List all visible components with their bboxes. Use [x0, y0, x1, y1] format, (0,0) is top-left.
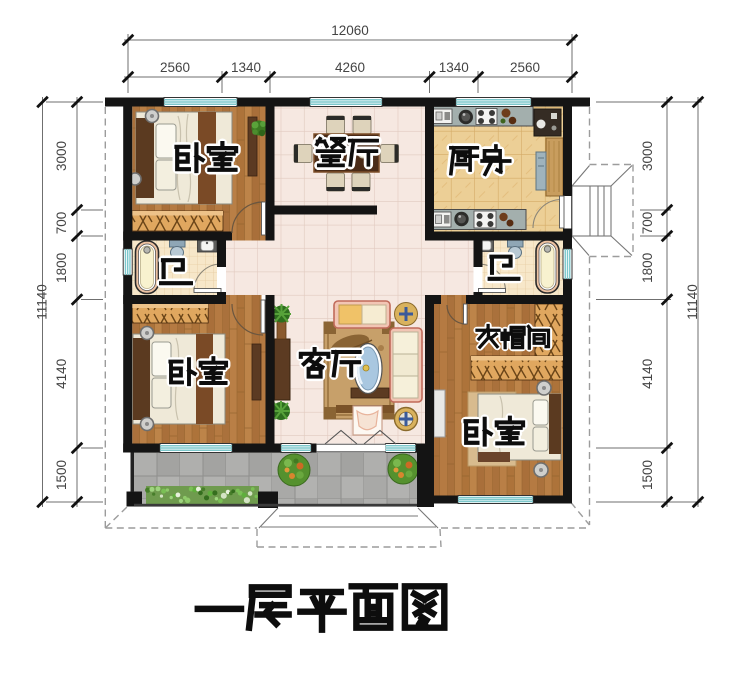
- svg-text:2560: 2560: [160, 60, 190, 75]
- svg-text:11140: 11140: [35, 284, 50, 320]
- svg-text:4260: 4260: [335, 60, 365, 75]
- svg-text:1340: 1340: [231, 60, 261, 75]
- svg-text:1500: 1500: [54, 460, 69, 490]
- svg-text:4140: 4140: [54, 359, 69, 389]
- svg-text:3000: 3000: [640, 141, 655, 171]
- svg-text:700: 700: [640, 212, 655, 235]
- svg-text:700: 700: [54, 212, 69, 235]
- svg-text:4140: 4140: [640, 359, 655, 389]
- svg-text:1340: 1340: [439, 60, 469, 75]
- svg-text:12060: 12060: [331, 23, 369, 38]
- svg-text:11140: 11140: [685, 284, 700, 320]
- svg-text:1800: 1800: [640, 253, 655, 283]
- svg-text:1500: 1500: [640, 460, 655, 490]
- svg-text:2560: 2560: [510, 60, 540, 75]
- svg-text:3000: 3000: [54, 141, 69, 171]
- svg-text:1800: 1800: [54, 253, 69, 283]
